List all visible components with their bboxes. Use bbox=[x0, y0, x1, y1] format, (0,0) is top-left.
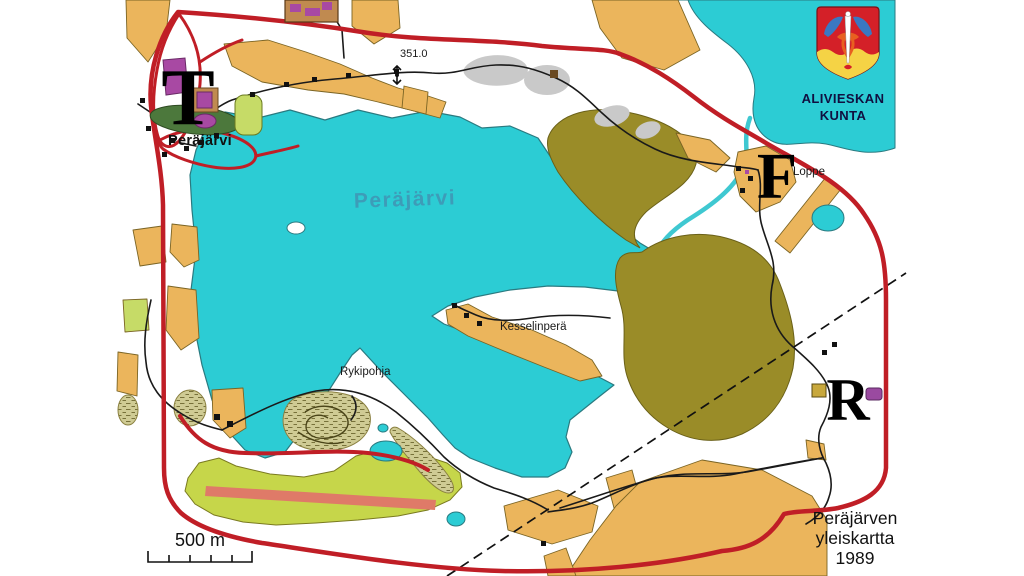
spot-height-symbol bbox=[393, 66, 401, 84]
kesselinpera-label: Kesselinperä bbox=[500, 321, 566, 333]
municipality-line2: KUNTA bbox=[788, 107, 898, 124]
loppe-label: Loppe bbox=[793, 166, 825, 178]
map-title-block: Peräjärven yleiskartta 1989 bbox=[790, 508, 920, 568]
map-canvas bbox=[0, 0, 1024, 576]
title-line3: 1989 bbox=[790, 548, 920, 568]
lake-name-label: Peräjärvi bbox=[353, 186, 456, 214]
marker-t: T bbox=[161, 58, 214, 138]
title-line1: Peräjärven bbox=[790, 508, 920, 528]
marker-f: F bbox=[757, 144, 797, 210]
scale-label: 500 m bbox=[175, 530, 225, 551]
marker-r: R bbox=[826, 370, 869, 430]
municipality-line1: ALIVIESKAN bbox=[788, 90, 898, 107]
title-line2: yleiskartta bbox=[790, 528, 920, 548]
scale-bar bbox=[148, 551, 252, 562]
rykipohja-label: Rykipohja bbox=[340, 366, 391, 378]
municipality-name: ALIVIESKAN KUNTA bbox=[788, 90, 898, 124]
spot-height-label: 351.0 bbox=[400, 48, 428, 60]
coat-of-arms bbox=[817, 7, 879, 79]
map-page: Peräjärvi Peräjärvi 351.0 Kesselinperä R… bbox=[0, 0, 1024, 576]
